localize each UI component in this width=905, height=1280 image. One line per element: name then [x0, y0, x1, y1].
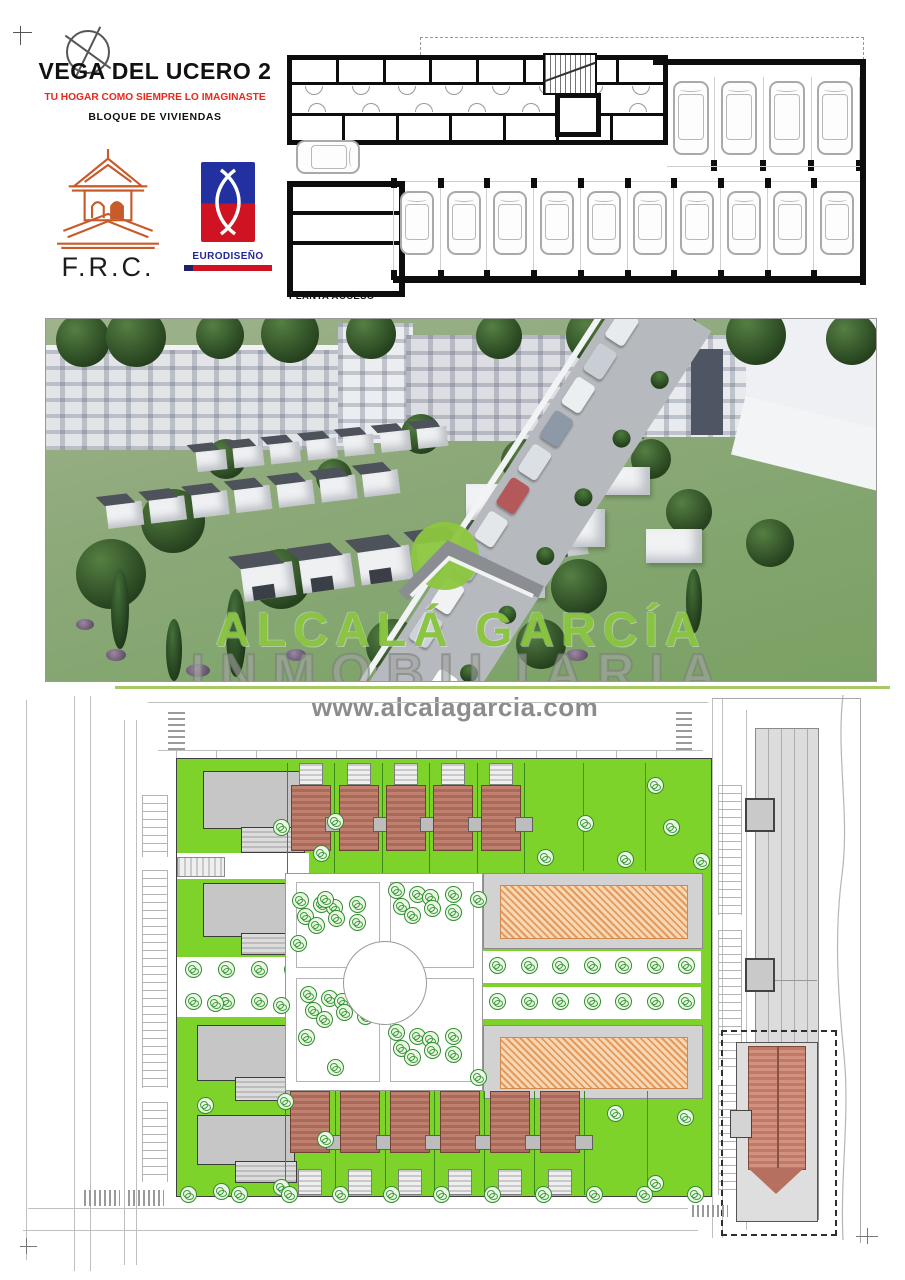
tree-icon — [316, 1011, 333, 1028]
aisle-line — [387, 181, 860, 182]
tree-icon — [290, 935, 307, 952]
tree-icon — [746, 519, 794, 567]
tree-icon — [383, 1186, 400, 1203]
road-line — [712, 698, 713, 1238]
tree-icon — [571, 485, 596, 510]
elevator-shaft — [555, 93, 601, 137]
tree-icon — [404, 1049, 421, 1066]
register-mark-icon — [20, 26, 21, 45]
tree-icon — [445, 1046, 462, 1063]
tree-icon — [445, 1028, 462, 1045]
tree-icon — [349, 914, 366, 931]
brochure-page: VEGA DEL UCERO 2 TU HOGAR COMO SIEMPRE L… — [0, 0, 905, 1280]
tree-icon — [231, 1186, 248, 1203]
tree-icon — [521, 957, 538, 974]
building-footprint — [500, 1037, 688, 1089]
car-icon — [680, 191, 714, 255]
parking-stall — [767, 183, 814, 276]
watermark-roof-icon — [391, 534, 566, 604]
tree-icon — [470, 891, 487, 908]
townhouse — [319, 474, 358, 502]
tree-icon — [586, 1186, 603, 1203]
apartment-building — [197, 1115, 295, 1165]
road-line — [148, 702, 708, 703]
building-platform — [483, 873, 703, 949]
page-title: VEGA DEL UCERO 2 — [28, 58, 282, 85]
plaza-circle — [343, 941, 427, 1025]
parking-stall — [673, 183, 720, 276]
plan-wall — [653, 59, 866, 65]
frc-logo: F.R.C. — [44, 148, 172, 283]
tree-icon — [185, 961, 202, 978]
frc-label: F.R.C. — [44, 252, 172, 283]
parking-row-upper — [667, 77, 860, 163]
tree-icon — [185, 993, 202, 1010]
townhouse-parcel — [478, 763, 525, 873]
tree-icon — [273, 997, 290, 1014]
watermark-descriptor: INMOBILIARIA — [46, 643, 876, 682]
townhouse — [240, 561, 296, 602]
parcel-line — [645, 763, 646, 871]
townhouse-parcel — [386, 1091, 436, 1195]
car-icon — [587, 191, 621, 255]
tree-icon — [404, 907, 421, 924]
parking-stall — [486, 183, 533, 276]
road-line — [23, 1230, 698, 1231]
tree-icon — [273, 819, 290, 836]
tree-icon — [609, 426, 634, 451]
street-parking-bays — [718, 785, 742, 915]
tree-row — [489, 993, 695, 1010]
stair-core — [745, 798, 775, 832]
rooms-block — [287, 181, 405, 297]
storage-cell — [399, 116, 452, 140]
car-icon — [400, 191, 434, 255]
tree-icon — [251, 993, 268, 1010]
townhouse — [416, 426, 448, 449]
tree-icon — [281, 1186, 298, 1203]
entry-stairs — [347, 763, 371, 785]
parking-stall — [715, 77, 763, 163]
terracotta-roof — [440, 1091, 480, 1153]
siteplan — [18, 690, 887, 1278]
tree-icon — [636, 1186, 653, 1203]
car-icon — [604, 318, 640, 347]
tagline: TU HOGAR COMO SIEMPRE LO IMAGINASTE — [28, 92, 282, 103]
tree-row — [180, 1186, 704, 1203]
tree-icon — [317, 891, 334, 908]
tree-icon — [424, 900, 441, 917]
tree-icon — [327, 1059, 344, 1076]
tree-icon — [489, 993, 506, 1010]
tree-icon — [197, 1097, 214, 1114]
car-icon — [447, 191, 481, 255]
central-plaza — [285, 873, 483, 1091]
street-parking-bays — [142, 870, 168, 1088]
tree-icon — [584, 993, 601, 1010]
entry-stairs — [441, 763, 465, 785]
tree-icon — [298, 1029, 315, 1046]
car-icon — [560, 376, 596, 415]
car-icon — [673, 81, 709, 155]
staircase — [543, 53, 597, 95]
car-icon — [582, 342, 618, 381]
parking-stall — [720, 183, 767, 276]
tree-icon — [617, 851, 634, 868]
townhouse — [232, 445, 264, 468]
car-icon — [817, 81, 853, 155]
tree-icon — [327, 813, 344, 830]
house — [646, 529, 702, 563]
crosswalk — [168, 712, 185, 752]
tree-icon — [300, 986, 317, 1003]
register-mark-icon — [867, 1228, 868, 1244]
apartment-slab-dark — [691, 349, 723, 435]
eurodiseno-mark-icon — [201, 162, 255, 242]
townhouse — [343, 434, 375, 457]
aisle-line — [667, 166, 860, 167]
tree-cluster — [292, 892, 378, 945]
tree-row — [489, 957, 695, 974]
townhouse-parcel — [430, 763, 477, 873]
tree-icon — [317, 1131, 334, 1148]
tree-icon — [251, 961, 268, 978]
tree-icon — [484, 1186, 501, 1203]
tree-icon — [647, 777, 664, 794]
car-icon — [495, 476, 531, 515]
road-line — [136, 720, 137, 1265]
car-icon — [296, 140, 360, 174]
townhouse-parcel — [485, 1091, 535, 1195]
tree-icon — [207, 995, 224, 1012]
tree-icon — [388, 1024, 405, 1041]
road-line — [28, 1208, 688, 1209]
townhouse-parcel — [336, 1091, 386, 1195]
tree-icon — [537, 849, 554, 866]
tree-icon — [433, 1186, 450, 1203]
townhouse — [196, 449, 228, 472]
crosswalk — [676, 712, 692, 752]
terracotta-roof — [490, 1091, 530, 1153]
tree-cluster — [388, 1024, 474, 1059]
apartment-building — [197, 1025, 295, 1081]
car-icon — [517, 443, 553, 482]
entry-stairs — [394, 763, 418, 785]
tree-icon — [388, 882, 405, 899]
rooftop-box — [575, 1135, 593, 1150]
townhouse — [380, 430, 412, 453]
eurodiseno-bar — [184, 265, 272, 271]
townhouse-parcel — [435, 1091, 485, 1195]
tree-icon — [277, 1093, 294, 1110]
tree-icon — [308, 917, 325, 934]
storage-cell — [432, 60, 479, 82]
townhouse — [269, 441, 301, 464]
tree-icon — [647, 367, 672, 392]
tree-icon — [678, 957, 695, 974]
tree-lined-path — [483, 951, 701, 983]
tree-icon — [218, 961, 235, 978]
townhouse — [299, 553, 355, 594]
tree-icon — [584, 957, 601, 974]
parking-stall — [812, 77, 860, 163]
road-line — [90, 696, 91, 1271]
townhouse-row — [106, 469, 401, 529]
townhouse-parcel — [535, 1091, 585, 1195]
floorplan-planta-acceso: PLANTA ACCESO — [287, 33, 873, 301]
room-wall — [293, 241, 399, 245]
tree-icon — [615, 993, 632, 1010]
street-parking-bays — [142, 795, 168, 857]
parking-stall — [393, 183, 440, 276]
terracotta-roof — [340, 1091, 380, 1153]
stair-core — [745, 958, 775, 992]
plan-wall — [860, 59, 866, 285]
car-icon — [769, 81, 805, 155]
road-line — [124, 720, 125, 1265]
entry-stairs — [489, 763, 513, 785]
tree-icon — [349, 896, 366, 913]
tree-icon — [332, 1186, 349, 1203]
townhouse — [362, 469, 401, 497]
tree-icon — [677, 1109, 694, 1126]
title-block: VEGA DEL UCERO 2 TU HOGAR COMO SIEMPRE L… — [28, 58, 282, 123]
tree-icon — [577, 815, 594, 832]
boundary-line — [860, 698, 861, 1243]
storage-cell — [292, 60, 339, 82]
tree-cluster — [388, 882, 474, 917]
building-platform — [483, 1025, 703, 1099]
storage-cell — [452, 116, 505, 140]
road-line — [26, 700, 27, 1260]
townhouse — [234, 485, 273, 513]
car-icon — [633, 191, 667, 255]
car-icon — [539, 409, 575, 448]
site-block — [176, 758, 712, 1197]
parking-stall — [764, 77, 812, 163]
frc-pavilion-icon — [44, 148, 172, 250]
entrance-area — [295, 129, 365, 183]
eurodiseno-label: EURODISEÑO — [172, 251, 284, 262]
street-parking-bays — [142, 1102, 168, 1182]
parking-stall — [813, 183, 860, 276]
road-line — [74, 696, 75, 1271]
tree-icon — [552, 957, 569, 974]
townhouse-parcel — [383, 763, 430, 873]
tree-icon — [313, 845, 330, 862]
register-mark-icon — [20, 1246, 37, 1247]
tree-icon — [292, 892, 309, 909]
rooftop-box — [515, 817, 533, 832]
tree-icon — [489, 957, 506, 974]
car-icon — [820, 191, 854, 255]
tree-icon — [445, 904, 462, 921]
tree-icon — [552, 993, 569, 1010]
parking-stall — [580, 183, 627, 276]
terracotta-roof — [540, 1091, 580, 1153]
tree-icon — [687, 1186, 704, 1203]
crosswalk — [692, 1205, 728, 1217]
tree-icon — [678, 993, 695, 1010]
register-mark-icon — [13, 32, 32, 33]
terrain-line — [828, 695, 858, 1240]
boundary-line — [712, 698, 860, 699]
tree-icon — [535, 1186, 552, 1203]
storage-cell — [613, 116, 663, 140]
tree-row — [185, 961, 301, 978]
storage-row-top — [292, 60, 663, 85]
townhouse — [191, 490, 230, 518]
townhouse — [306, 437, 338, 460]
parking-stall — [627, 183, 674, 276]
tree-icon — [445, 886, 462, 903]
tree-icon — [607, 1105, 624, 1122]
tree-icon — [521, 993, 538, 1010]
room-wall — [293, 211, 399, 215]
car-icon — [493, 191, 527, 255]
storage-cell — [386, 60, 433, 82]
highlight-dashed-outline — [721, 1030, 837, 1236]
steps — [177, 857, 225, 877]
tree-icon — [180, 1186, 197, 1203]
car-icon — [540, 191, 574, 255]
subtitle: BLOQUE DE VIVIENDAS — [28, 111, 282, 123]
parking-stall — [440, 183, 487, 276]
parking-row-lower — [393, 183, 860, 283]
tree-icon — [424, 1042, 441, 1059]
car-icon — [773, 191, 807, 255]
entry-stairs — [299, 763, 323, 785]
tree-icon — [328, 910, 345, 927]
tree-icon — [615, 957, 632, 974]
tree-icon — [826, 318, 877, 365]
townhouse — [276, 480, 315, 508]
green-divider — [115, 686, 890, 689]
tree-icon — [693, 853, 710, 870]
car-icon — [727, 191, 761, 255]
tree-lined-path — [483, 987, 701, 1019]
townhouse — [148, 495, 187, 523]
eurodiseno-logo: EURODISEÑO — [172, 162, 284, 271]
storage-cell — [479, 60, 526, 82]
aerial-render-image: ALCALÁ GARCÍA INMOBILIARIA — [45, 318, 877, 682]
tree-icon — [647, 957, 664, 974]
building-footprint — [500, 885, 688, 939]
townhouse — [106, 501, 145, 529]
tree-icon — [663, 819, 680, 836]
crosswalk — [84, 1190, 120, 1206]
tree-icon — [647, 993, 664, 1010]
plan-caption: PLANTA ACCESO — [289, 291, 375, 302]
car-icon — [721, 81, 757, 155]
tree-icon — [470, 1069, 487, 1086]
crosswalk — [128, 1190, 164, 1206]
parking-stall — [667, 77, 715, 163]
storage-cell — [339, 60, 386, 82]
parking-stall — [533, 183, 580, 276]
storage-cell — [506, 116, 559, 140]
terracotta-roof — [390, 1091, 430, 1153]
